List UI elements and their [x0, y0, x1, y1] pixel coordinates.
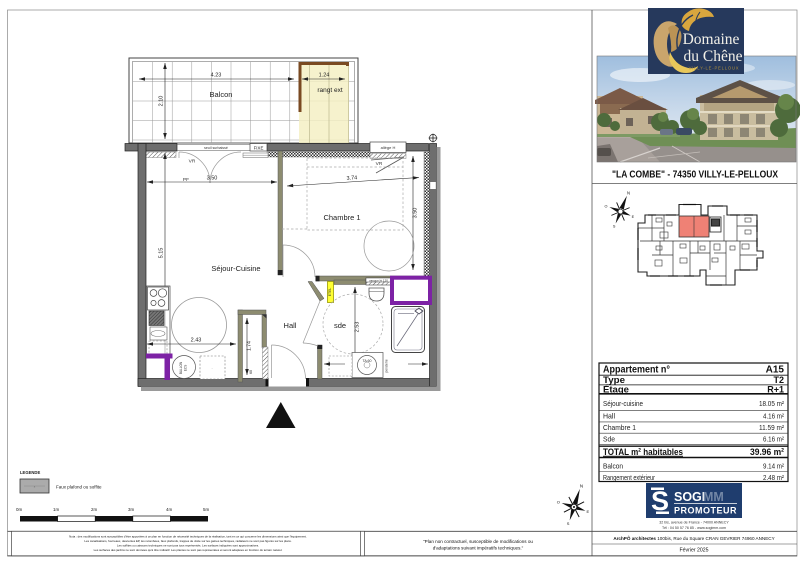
svg-text:Balcon: Balcon [603, 461, 623, 470]
svg-text:2.48 m²: 2.48 m² [763, 473, 784, 482]
svg-text:LEGENDE: LEGENDE [20, 470, 40, 475]
svg-text:N: N [627, 190, 630, 195]
svg-text:4.16 m²: 4.16 m² [763, 412, 784, 421]
svg-text:1.24: 1.24 [319, 73, 330, 79]
svg-text:Chambre 1: Chambre 1 [323, 213, 360, 222]
svg-text:sde: sde [334, 321, 346, 330]
svg-text:Chambre 1: Chambre 1 [603, 423, 636, 432]
svg-text:5.15: 5.15 [159, 248, 165, 259]
svg-text:9.14 m²: 9.14 m² [763, 461, 784, 470]
svg-text:d'adaptations suivant impérati: d'adaptations suivant impératifs techniq… [433, 546, 524, 551]
svg-text:VR: VR [376, 161, 383, 167]
svg-text:PROMOTEUR: PROMOTEUR [674, 506, 737, 516]
svg-text:"Plan non contractuel, suscept: "Plan non contractuel, susceptible de mo… [423, 539, 533, 544]
svg-text:3m: 3m [128, 507, 135, 512]
svg-text:11.59 m²: 11.59 m² [759, 423, 784, 432]
svg-text:2.53: 2.53 [355, 322, 361, 333]
svg-text:VR: VR [189, 159, 196, 165]
svg-text:2.43: 2.43 [191, 338, 202, 344]
svg-text:MM: MM [703, 490, 724, 504]
svg-text:Faux plafond ou soffite: Faux plafond ou soffite [56, 485, 102, 490]
svg-text:SOGI: SOGI [674, 490, 705, 504]
svg-text:ArchPÔ architectes 100bis, R: ArchPÔ architectes 100bis, Rue du Square… [613, 534, 774, 541]
svg-text:E: E [586, 509, 589, 514]
svg-text:32 bis, avenue de France - 740: 32 bis, avenue de France - 74000 ANNECY [659, 521, 729, 525]
svg-text:Les soffites ou caissons techn: Les soffites ou caissons techniques ne s… [117, 544, 259, 548]
svg-text:E: E [632, 215, 635, 219]
svg-text:O: O [605, 204, 608, 208]
svg-text:18.05 m²: 18.05 m² [759, 399, 784, 408]
svg-text:Hall: Hall [603, 412, 615, 421]
svg-text:3.74: 3.74 [346, 175, 357, 182]
svg-text:3.50: 3.50 [413, 208, 419, 219]
svg-text:O: O [557, 499, 560, 504]
svg-text:3.50: 3.50 [207, 176, 218, 182]
svg-text:.: . [211, 365, 212, 370]
svg-text:Hall: Hall [284, 321, 297, 330]
svg-text:penderie: penderie [385, 359, 389, 372]
svg-text:du Chêne: du Chêne [684, 48, 743, 65]
svg-text:ETEL: ETEL [328, 288, 332, 297]
svg-text:Tél : 04 50 57 76 85 - www.sog: Tél : 04 50 57 76 85 - www.sogimm.com [662, 526, 726, 530]
svg-text:Étage: Étage [603, 384, 629, 394]
svg-text:TOTAL m² habitables: TOTAL m² habitables [603, 447, 683, 458]
svg-text:S: S [567, 521, 570, 526]
svg-text:VILLY-LE-PELLOUX: VILLY-LE-PELLOUX [689, 66, 740, 71]
svg-text:Domaine: Domaine [683, 31, 740, 48]
svg-text:A15: A15 [766, 365, 785, 376]
svg-text:5m: 5m [203, 507, 210, 512]
svg-text:FIXE: FIXE [254, 145, 264, 150]
svg-text:Les surfaces des jardins ne so: Les surfaces des jardins ne sont données… [94, 548, 283, 552]
svg-text:60: 60 [249, 370, 253, 374]
svg-text:N: N [580, 483, 583, 488]
svg-text:rangt ext: rangt ext [317, 87, 342, 94]
svg-text:39.96 m²: 39.96 m² [750, 447, 784, 458]
svg-text:TA 60: TA 60 [362, 359, 371, 363]
svg-text:seuil surbaissé: seuil surbaissé [204, 146, 228, 150]
svg-text:Appartement n°: Appartement n° [603, 365, 670, 376]
svg-text:1m: 1m [53, 507, 60, 512]
svg-text:BALLON: BALLON [179, 361, 183, 374]
svg-text:vasque ht 120: vasque ht 120 [369, 279, 388, 283]
svg-text:S: S [613, 224, 616, 228]
svg-text:R+1: R+1 [767, 384, 784, 394]
svg-text:Les canalisations, fourreaux,: Les canalisations, fourreaux, descentes … [84, 539, 291, 543]
svg-text:0m: 0m [16, 507, 23, 512]
svg-text:Février 2025: Février 2025 [679, 548, 708, 554]
svg-text:Rangement extérieur: Rangement extérieur [603, 473, 655, 482]
svg-text:Nota : des modifications sont: Nota : des modifications sont susceptibl… [69, 535, 307, 539]
svg-text:2m: 2m [91, 507, 98, 512]
svg-text:Sde: Sde [603, 435, 615, 444]
svg-text:allège H: allège H [381, 145, 396, 150]
svg-text:4.23: 4.23 [211, 73, 222, 79]
svg-text:6.16 m²: 6.16 m² [763, 435, 784, 444]
svg-text:2.10: 2.10 [159, 96, 165, 107]
svg-text:"LA COMBE" - 74350 VILLY-LE-PE: "LA COMBE" - 74350 VILLY-LE-PELLOUX [612, 169, 778, 181]
svg-text:Séjour-cuisine: Séjour-cuisine [603, 399, 643, 408]
svg-text:Balcon: Balcon [210, 90, 233, 99]
svg-text:Séjour-Cuisine: Séjour-Cuisine [211, 264, 260, 273]
svg-text:4m: 4m [166, 507, 173, 512]
svg-text:1.74: 1.74 [247, 341, 253, 351]
svg-text:ECS: ECS [184, 365, 188, 372]
